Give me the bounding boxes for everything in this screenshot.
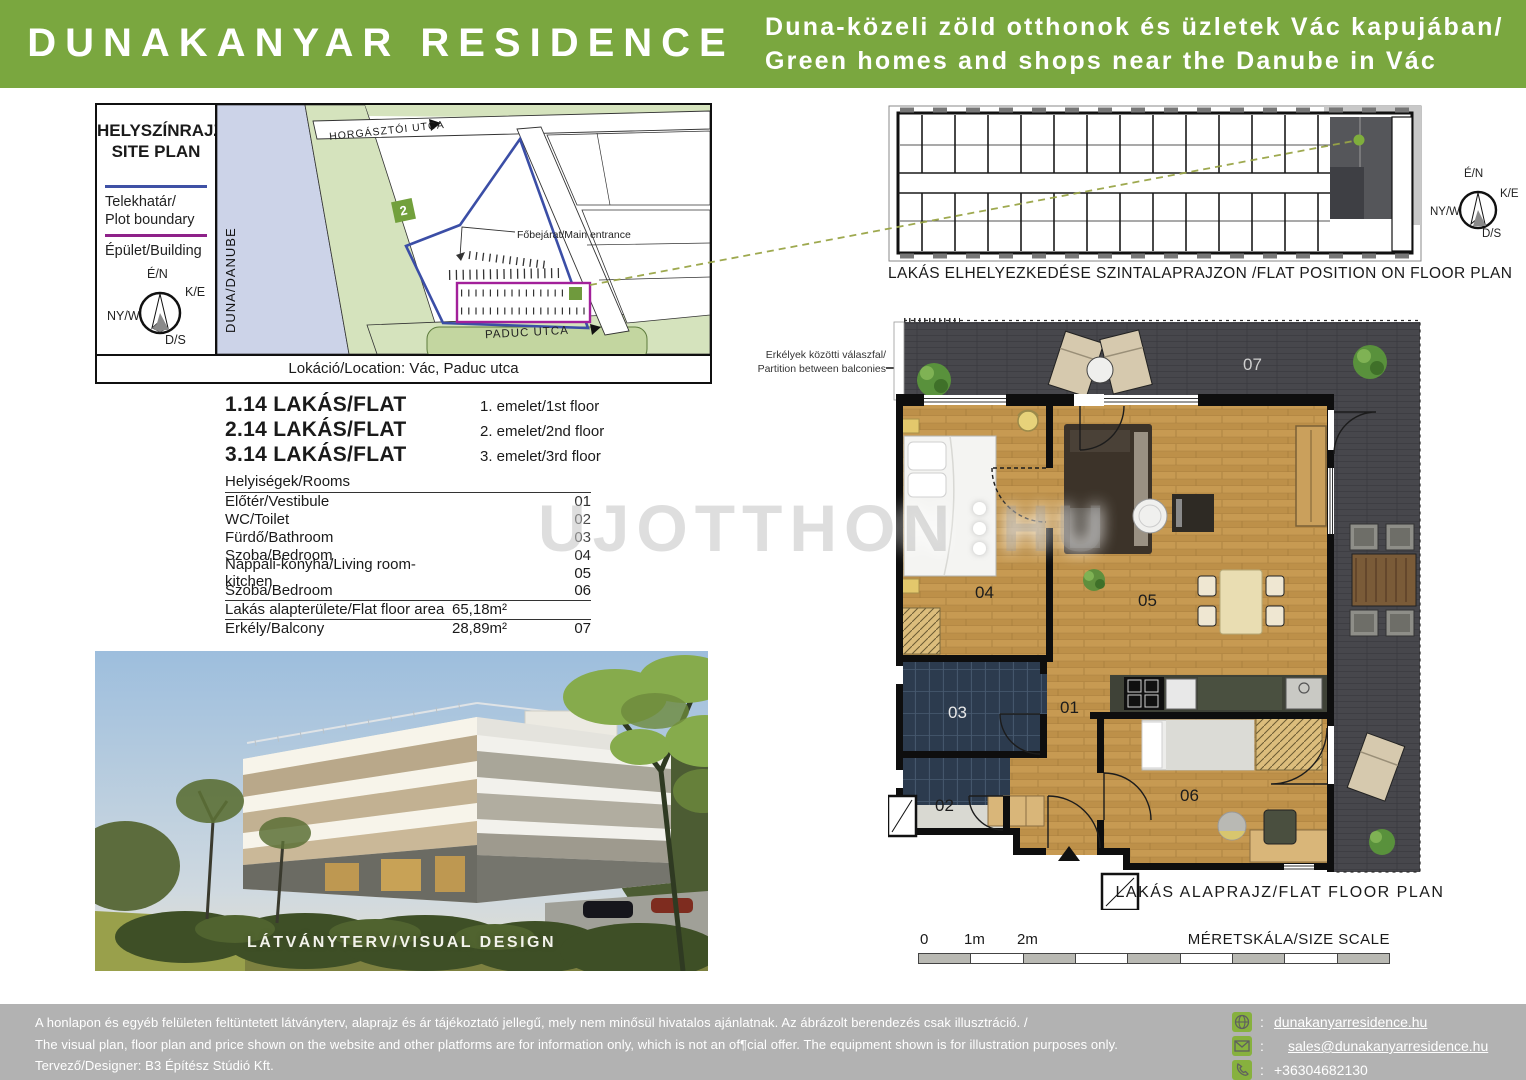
- header-band: DUNAKANYAR RESIDENCE Duna-közeli zöld ot…: [0, 0, 1526, 88]
- flat-floor: 1. emelet/1st floor: [480, 398, 599, 415]
- flat-name: 1.14 LAKÁS/FLAT: [225, 393, 480, 417]
- compass-w-label: NY/W: [1430, 206, 1460, 218]
- location-bar: Lokáció/Location: Vác, Paduc utca: [97, 354, 710, 382]
- rooms-header: Helyiségek/Rooms: [225, 473, 591, 493]
- room-label-03: 03: [948, 703, 967, 723]
- building-render-drawing: [95, 651, 708, 971]
- building-swatch: [105, 234, 207, 237]
- disclaimer-en: The visual plan, floor plan and price sh…: [35, 1034, 1118, 1056]
- compass-e-label: K/E: [185, 285, 205, 299]
- site-plan-heading: HELYSZÍNRAJZ/ SITE PLAN: [97, 120, 215, 162]
- table-row: Fürdő/Bathroom 03: [225, 529, 591, 547]
- scale-bar: 0 1m 2m MÉRETSKÁLA/SIZE SCALE: [918, 931, 1390, 964]
- table-row: Szoba/Bedroom 06: [225, 582, 591, 600]
- compass-rose: É/N K/E NY/W D/S: [107, 267, 213, 353]
- tagline-hu: Duna-közeli zöld otthonok és üzletek Vác…: [765, 10, 1504, 44]
- globe-icon: [1232, 1012, 1252, 1032]
- scale-bar-segments: [918, 953, 1390, 964]
- compass-n-label: É/N: [1464, 168, 1483, 180]
- room-label-01: 01: [1060, 698, 1079, 718]
- building-render-image: LÁTVÁNYTERV/VISUAL DESIGN: [95, 651, 708, 971]
- compass-w-label: NY/W: [107, 309, 140, 323]
- flat-name: 3.14 LAKÁS/FLAT: [225, 443, 480, 467]
- site-map-drawing: [217, 105, 710, 354]
- room-label-06: 06: [1180, 786, 1199, 806]
- phone-row: : +36304682130: [1232, 1059, 1488, 1080]
- flat-list: 1.14 LAKÁS/FLAT 1. emelet/1st floor 2.14…: [225, 393, 645, 468]
- site-plan-panel: HELYSZÍNRAJZ/ SITE PLAN Telekhatár/ Plot…: [95, 103, 712, 384]
- flat-row: 1.14 LAKÁS/FLAT 1. emelet/1st floor: [225, 393, 645, 418]
- entrance-arrow-icon: [1058, 846, 1080, 861]
- balcony-area-row: Erkély/Balcony 28,89m² 07: [225, 619, 591, 638]
- floor-plan-drawing: [888, 318, 1422, 910]
- phone-icon: [1232, 1060, 1252, 1080]
- main-entrance-label: Főbejárat/Main entrance: [517, 229, 631, 241]
- compass-n-label: É/N: [147, 267, 168, 281]
- footer: A honlapon és egyéb felületen feltüntete…: [0, 1004, 1526, 1080]
- site-plan-map: DUNA/DANUBE HORGÁSZTÓI UTCA PADUC UTCA F…: [215, 105, 710, 354]
- brochure-page: DUNAKANYAR RESIDENCE Duna-közeli zöld ot…: [0, 0, 1526, 1080]
- route-2-badge: 2: [391, 198, 416, 223]
- website-row: : dunakanyarresidence.hu: [1232, 1011, 1488, 1033]
- tagline-en: Green homes and shops near the Danube in…: [765, 44, 1504, 78]
- flat-row: 2.14 LAKÁS/FLAT 2. emelet/2nd floor: [225, 418, 645, 443]
- scale-title: MÉRETSKÁLA/SIZE SCALE: [1188, 931, 1390, 948]
- river-label: DUNA/DANUBE: [223, 220, 238, 340]
- flat-area-value: 65,18m²: [452, 601, 557, 618]
- email-link[interactable]: sales@dunakanyarresidence.hu: [1288, 1038, 1488, 1054]
- scale-0: 0: [920, 931, 928, 948]
- page-title: DUNAKANYAR RESIDENCE: [0, 21, 762, 66]
- room-label-02: 02: [935, 796, 954, 816]
- table-row: WC/Toilet 02: [225, 511, 591, 529]
- header-tagline: Duna-közeli zöld otthonok és üzletek Vác…: [765, 10, 1504, 78]
- flat-floor-plan: [888, 318, 1422, 910]
- disclaimer-hu: A honlapon és egyéb felületen feltüntete…: [35, 1012, 1118, 1034]
- partition-note: Erkélyek közötti válaszfal/ Partition be…: [756, 349, 886, 376]
- website-link[interactable]: dunakanyarresidence.hu: [1274, 1014, 1427, 1030]
- flat-area-row: Lakás alapterülete/Flat floor area 65,18…: [225, 600, 591, 619]
- email-row: : sales@dunakanyarresidence.hu: [1232, 1035, 1488, 1057]
- compass-e-label: K/E: [1500, 188, 1519, 200]
- compass-rose-small: É/N K/E NY/W D/S: [1430, 166, 1526, 250]
- plot-boundary-swatch: [105, 185, 207, 188]
- designer-credit: Tervező/Designer: B3 Építész Stúdió Kft.: [35, 1055, 1118, 1077]
- rooms-table: Helyiségek/Rooms Előtér/Vestibule 01 WC/…: [225, 473, 591, 637]
- position-plan-caption: LAKÁS ELHELYEZKEDÉSE SZINTALAPRAJZON /FL…: [888, 265, 1422, 283]
- plot-boundary-label: Telekhatár/ Plot boundary: [105, 193, 194, 229]
- scale-1m: 1m: [964, 931, 985, 948]
- room-label-07: 07: [1243, 355, 1262, 375]
- room-label-05: 05: [1138, 591, 1157, 611]
- position-plan-drawing: [888, 105, 1422, 262]
- room-label-04: 04: [975, 583, 994, 603]
- compass-s-label: D/S: [165, 333, 186, 347]
- flat-row: 3.14 LAKÁS/FLAT 3. emelet/3rd floor: [225, 443, 645, 468]
- contact-block: : dunakanyarresidence.hu : sales@dunakan…: [1232, 1011, 1488, 1080]
- table-row: Előtér/Vestibule 01: [225, 493, 591, 511]
- table-row: Nappali-konyha/Living room-kitchen 05: [225, 564, 591, 582]
- site-plan-legend: HELYSZÍNRAJZ/ SITE PLAN Telekhatár/ Plot…: [97, 105, 215, 354]
- disclaimer: A honlapon és egyéb felületen feltüntete…: [35, 1012, 1118, 1077]
- photo-caption: LÁTVÁNYTERV/VISUAL DESIGN: [95, 934, 708, 952]
- scale-2m: 2m: [1017, 931, 1038, 948]
- floor-plan-caption: LAKÁS ALAPRAJZ/FLAT FLOOR PLAN: [1090, 884, 1470, 902]
- compass-s-label: D/S: [1482, 228, 1501, 240]
- flat-floor: 3. emelet/3rd floor: [480, 448, 601, 465]
- balcony-area-value: 28,89m²: [452, 620, 557, 637]
- email-icon: [1232, 1036, 1252, 1056]
- phone-link[interactable]: +36304682130: [1274, 1062, 1368, 1078]
- building-label: Épület/Building: [105, 242, 202, 260]
- flat-position-plan: [888, 105, 1422, 262]
- flat-floor: 2. emelet/2nd floor: [480, 423, 604, 440]
- flat-name: 2.14 LAKÁS/FLAT: [225, 418, 480, 442]
